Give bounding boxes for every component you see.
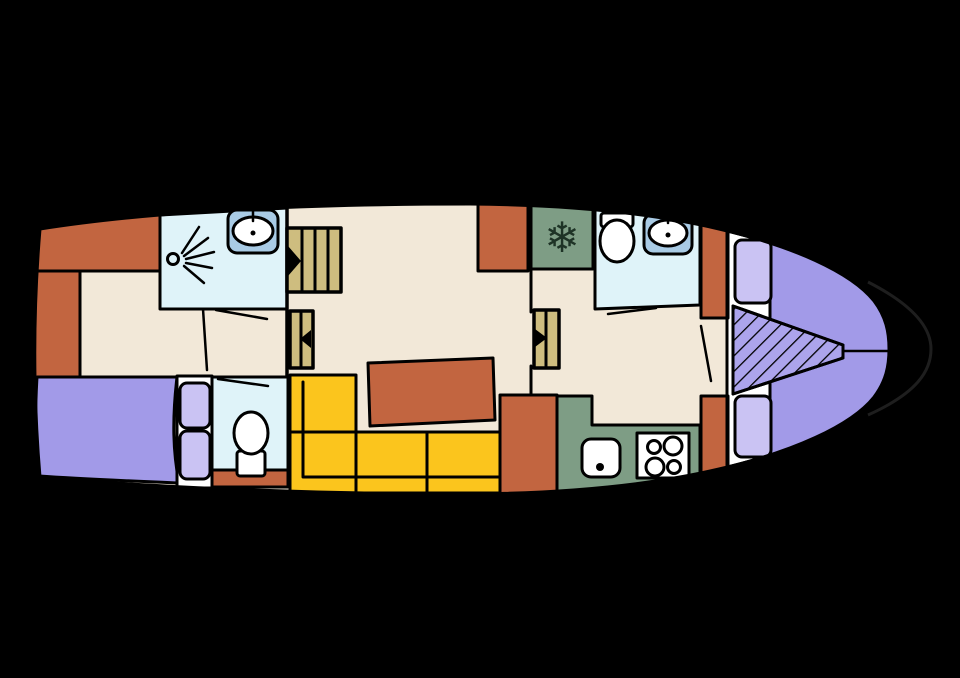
floor-plan-canvas: ❄ xyxy=(0,0,960,678)
galley-cabinet-bottom xyxy=(500,395,557,495)
companionway-stairs xyxy=(287,228,341,292)
galley-sink-icon xyxy=(582,439,620,477)
galley-cabinet-top xyxy=(478,204,528,271)
aft-double-bed xyxy=(36,377,179,483)
aft-pillow-bottom xyxy=(180,431,210,479)
stove-icon xyxy=(637,433,689,478)
fore-pillar-top xyxy=(701,221,728,318)
shower-sink-icon xyxy=(228,210,278,253)
boat-floor-plan: ❄ xyxy=(0,0,960,678)
aft-cabinet-side xyxy=(34,271,80,378)
aft-steps xyxy=(290,311,313,368)
snowflake-icon: ❄ xyxy=(544,213,579,262)
toilet-icon-aft xyxy=(234,412,268,476)
toilet-icon-fore xyxy=(600,213,634,262)
saloon-table xyxy=(368,358,495,426)
vberth-pillow-top xyxy=(735,240,771,303)
fore-pillar-bottom xyxy=(701,396,728,478)
fore-cabin-steps xyxy=(534,310,559,368)
vberth-pillow-bottom xyxy=(735,396,771,457)
aft-pillow-top xyxy=(180,383,210,428)
